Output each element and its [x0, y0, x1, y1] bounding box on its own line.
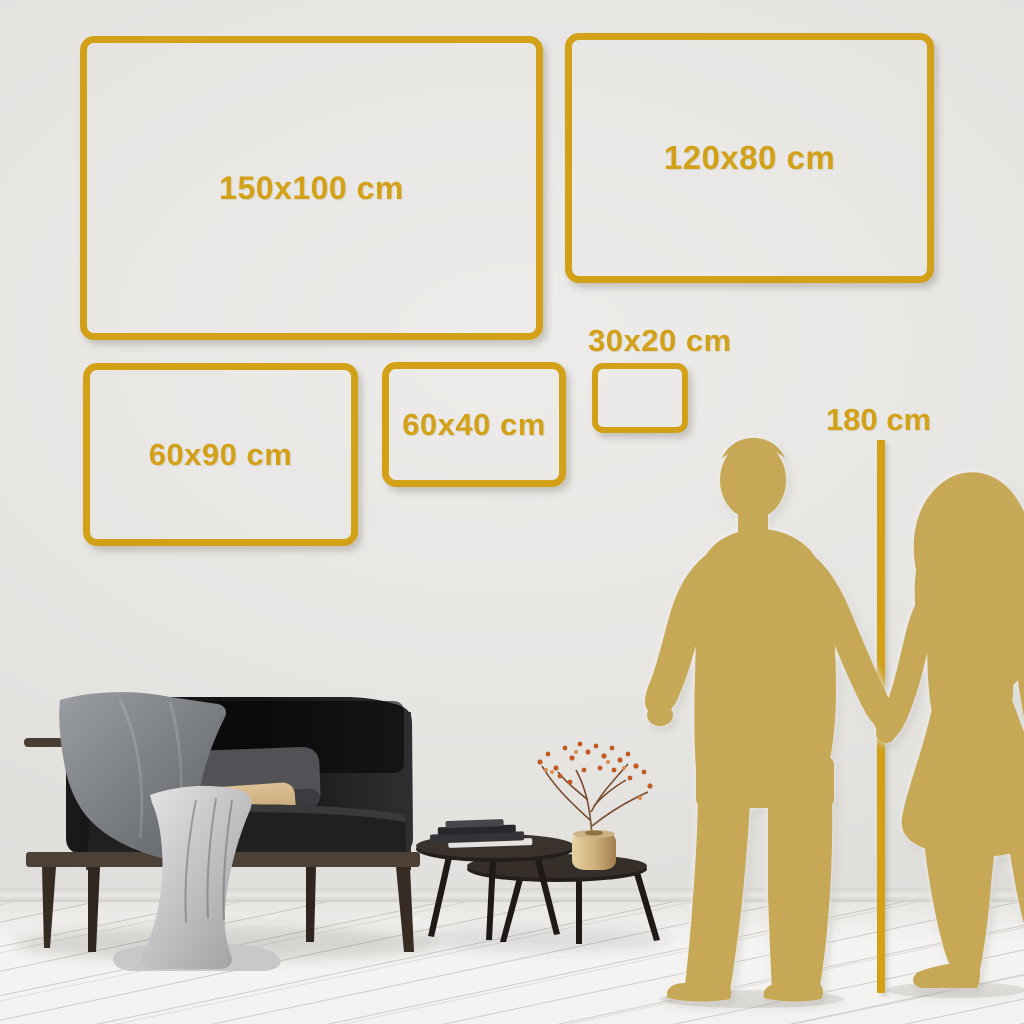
couple-silhouettes — [0, 0, 1024, 1024]
woman-silhouette — [876, 472, 1024, 988]
size-guide-scene: 150x100 cm 120x80 cm 60x90 cm 60x40 cm 3… — [0, 0, 1024, 1024]
man-silhouette — [645, 438, 900, 1002]
